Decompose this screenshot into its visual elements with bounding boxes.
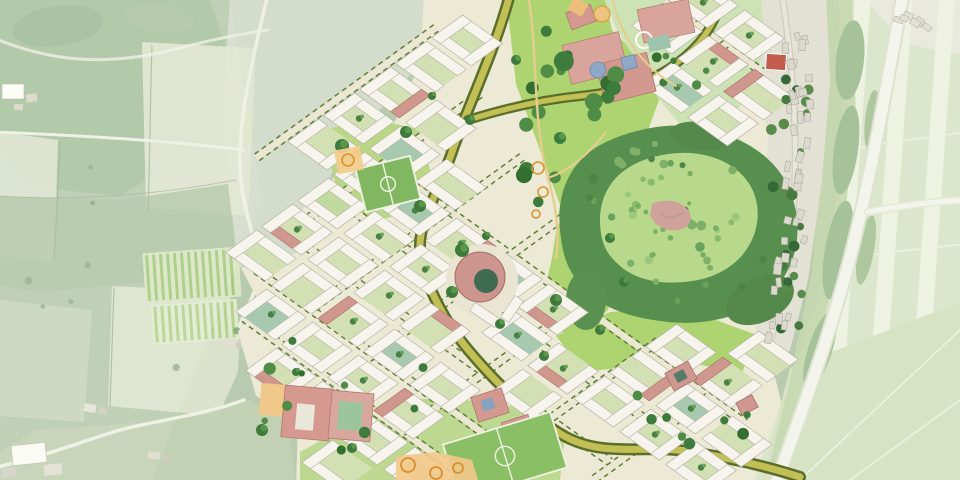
woodland-park-tree xyxy=(640,176,646,182)
city-blocks-tree xyxy=(462,240,466,244)
village-houses-house xyxy=(781,253,790,263)
city-blocks-tree xyxy=(564,365,568,369)
trees-tree xyxy=(337,445,346,454)
village-houses-house xyxy=(776,277,782,287)
trees-tree xyxy=(541,64,555,78)
trees xyxy=(515,55,521,61)
woodland-park-tree xyxy=(732,213,740,221)
village-houses-house xyxy=(786,104,792,113)
woodland-park-tree xyxy=(702,281,709,288)
landmark-buildings xyxy=(474,269,498,293)
city-blocks-tree xyxy=(554,306,558,310)
trees-tree xyxy=(646,414,657,425)
landmark-buildings xyxy=(590,62,606,78)
trees-tree xyxy=(782,285,790,293)
trees-tree xyxy=(766,124,777,135)
woodland-park-tree xyxy=(713,225,719,231)
village-houses-house xyxy=(797,111,803,123)
woodland-park-tree xyxy=(653,229,658,234)
landmark-buildings xyxy=(295,403,315,430)
woodland-park-tree xyxy=(707,265,713,271)
trees-tree xyxy=(684,438,696,450)
trees-tree xyxy=(419,363,428,372)
city-blocks-tree xyxy=(678,84,682,88)
trees-tree xyxy=(588,107,602,121)
trees-tree xyxy=(720,416,728,424)
trees-tree xyxy=(410,405,418,413)
trees-tree xyxy=(703,67,710,74)
trees-tree xyxy=(601,90,614,103)
village-houses-house xyxy=(794,183,802,191)
woodland-park-tree xyxy=(696,221,706,231)
trees-tree xyxy=(299,370,305,376)
city-blocks-tree xyxy=(400,351,404,355)
trees xyxy=(486,232,490,236)
city-blocks-tree xyxy=(364,377,368,381)
trees-tree xyxy=(516,167,532,183)
trees-tree xyxy=(692,80,701,89)
woodland-park-tree xyxy=(659,160,668,169)
trees-tree xyxy=(779,119,790,130)
trees-tree xyxy=(794,321,803,330)
woodland-park-tree xyxy=(652,141,658,147)
trees-tree xyxy=(341,382,348,389)
village-houses-house xyxy=(781,237,788,244)
landmark-buildings xyxy=(765,53,786,70)
woodland-park-tree xyxy=(658,175,664,181)
landmark-buildings xyxy=(621,54,638,70)
trees-tree xyxy=(743,411,750,418)
trees-tree xyxy=(678,432,686,440)
trees-tree xyxy=(282,401,292,411)
trees xyxy=(405,127,412,134)
village-houses-house xyxy=(769,321,775,329)
city-blocks-tree xyxy=(272,311,276,315)
village-houses-house xyxy=(798,39,805,51)
woodland-park-tree xyxy=(653,279,659,285)
woodland-park-tree xyxy=(728,166,736,174)
woodland-park-tree xyxy=(629,211,637,219)
rural-west xyxy=(162,456,170,463)
trees-tree xyxy=(533,197,544,208)
city-blocks-tree xyxy=(656,431,660,435)
trees-tree xyxy=(554,51,574,71)
village-houses-house xyxy=(773,263,782,275)
trees-tree xyxy=(797,290,805,298)
trees xyxy=(469,115,475,121)
trees xyxy=(609,233,615,239)
trees xyxy=(559,133,566,140)
village-houses-house xyxy=(775,313,782,324)
paths-and-play xyxy=(334,146,364,174)
woodland-park-tree xyxy=(695,242,705,252)
trees-tree xyxy=(663,53,670,60)
city-blocks-tree xyxy=(702,464,706,468)
trees-tree xyxy=(607,66,624,83)
woodland-park-tree xyxy=(625,191,631,197)
trees xyxy=(451,287,458,294)
trees xyxy=(623,277,629,283)
woodland-park-tree xyxy=(627,260,634,267)
city-blocks-tree xyxy=(518,332,522,336)
woodland-park-tree xyxy=(648,156,655,163)
woodland-park-tree xyxy=(586,194,593,201)
woodland-park-tree xyxy=(668,235,674,241)
city-blocks-tree xyxy=(714,58,718,62)
woodland-park-tree xyxy=(649,252,654,257)
village-houses-house xyxy=(805,74,812,81)
trees xyxy=(419,201,426,208)
trees xyxy=(261,425,268,432)
woodland-park-tree xyxy=(588,174,598,184)
village-houses-house xyxy=(794,174,803,184)
city-blocks-tree xyxy=(380,233,384,237)
masterplan-map xyxy=(0,0,960,480)
city-blocks-tree xyxy=(298,226,302,230)
woodland-park-tree xyxy=(608,213,615,220)
city-blocks-tree xyxy=(360,115,364,119)
village-houses-house xyxy=(781,320,788,330)
woodland-park-tree xyxy=(648,179,655,186)
woodland-park-tree xyxy=(738,283,746,291)
woodland-park-tree xyxy=(633,148,641,156)
city-blocks-tree xyxy=(750,32,754,36)
city-blocks-tree xyxy=(390,292,394,296)
trees-tree xyxy=(737,428,749,440)
village-houses-house xyxy=(805,113,811,122)
trees-tree xyxy=(264,362,276,374)
trees-tree xyxy=(261,417,268,424)
woodland-park-tree xyxy=(703,257,711,265)
trees-tree xyxy=(519,118,533,132)
trees-tree xyxy=(652,52,662,62)
city-blocks-tree xyxy=(692,405,696,409)
trees-tree xyxy=(541,26,552,37)
village-houses-house xyxy=(782,43,788,54)
trees-tree xyxy=(288,337,296,345)
trees xyxy=(460,244,468,252)
trees-tree xyxy=(781,75,791,85)
landmark-buildings xyxy=(337,401,363,431)
trees xyxy=(340,140,348,148)
trees xyxy=(432,92,436,96)
woodland-park-tree xyxy=(687,171,692,176)
trees-tree xyxy=(790,272,799,281)
trees xyxy=(499,319,505,325)
woodland-park-tree xyxy=(644,210,649,215)
woodland-park-tree xyxy=(687,201,691,205)
village-houses-house xyxy=(806,99,814,109)
woodland-park-tree xyxy=(675,298,681,304)
trees xyxy=(599,325,605,331)
trees xyxy=(351,443,357,449)
woodland-park-tree xyxy=(700,252,706,258)
city-blocks-tree xyxy=(426,266,430,270)
trees-tree xyxy=(359,427,370,438)
paths-and-play xyxy=(594,6,610,22)
trees-tree xyxy=(670,58,676,64)
trees xyxy=(555,295,562,302)
woodland-park-tree xyxy=(667,160,674,167)
trees-tree xyxy=(768,181,779,192)
woodland-park-tree xyxy=(679,162,685,168)
woodland-park-tree xyxy=(635,203,641,209)
trees xyxy=(543,351,549,357)
village-houses-house xyxy=(783,216,792,225)
village-houses-house xyxy=(790,258,798,268)
city-blocks-tree xyxy=(728,379,732,383)
woodland-park-tree xyxy=(714,235,721,242)
city-blocks-tree xyxy=(354,318,358,322)
village-houses-house xyxy=(798,88,807,97)
woodland-park-tree xyxy=(759,255,767,263)
trees-tree xyxy=(662,413,671,422)
woodland-park-tree xyxy=(618,160,626,168)
trees-tree xyxy=(633,391,643,401)
map-canvas xyxy=(0,0,960,480)
trees-tree xyxy=(789,241,800,252)
